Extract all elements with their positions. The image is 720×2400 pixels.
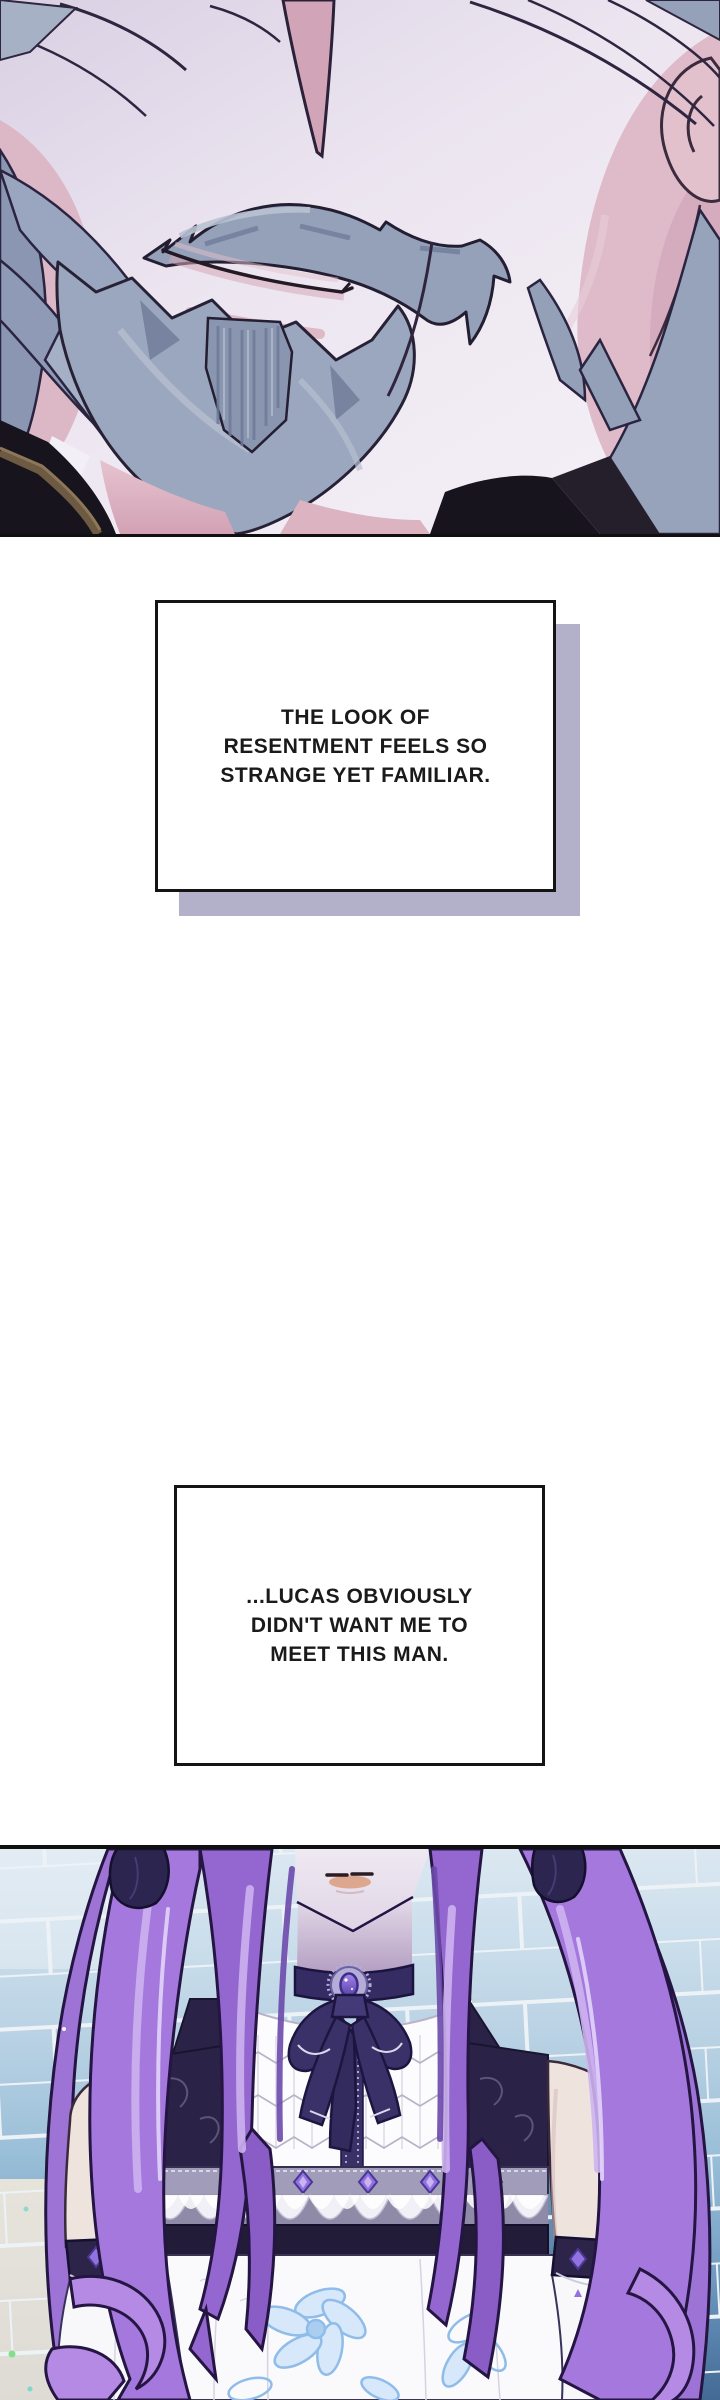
monologue-box-1: THE LOOK OF RESENTMENT FEELS SO STRANGE …: [155, 600, 556, 892]
monologue-line: RESENTMENT FEELS SO: [224, 732, 488, 761]
face-closeup-art: [0, 0, 720, 534]
monologue-line: THE LOOK OF: [281, 703, 430, 732]
monologue-line: DIDN'T WANT ME TO: [251, 1611, 468, 1640]
monologue-line: STRANGE YET FAMILIAR.: [220, 761, 490, 790]
woman-portrait-art: [0, 1849, 720, 2400]
monologue-line: MEET THIS MAN.: [270, 1640, 449, 1669]
panel-woman-portrait: [0, 1845, 720, 2400]
webtoon-page: THE LOOK OF RESENTMENT FEELS SO STRANGE …: [0, 0, 720, 2400]
panel-face-closeup: [0, 0, 720, 537]
monologue-box-2: ...LUCAS OBVIOUSLY DIDN'T WANT ME TO MEE…: [174, 1485, 545, 1766]
monologue-line: ...LUCAS OBVIOUSLY: [246, 1582, 472, 1611]
face-and-neck: [295, 1849, 430, 1976]
